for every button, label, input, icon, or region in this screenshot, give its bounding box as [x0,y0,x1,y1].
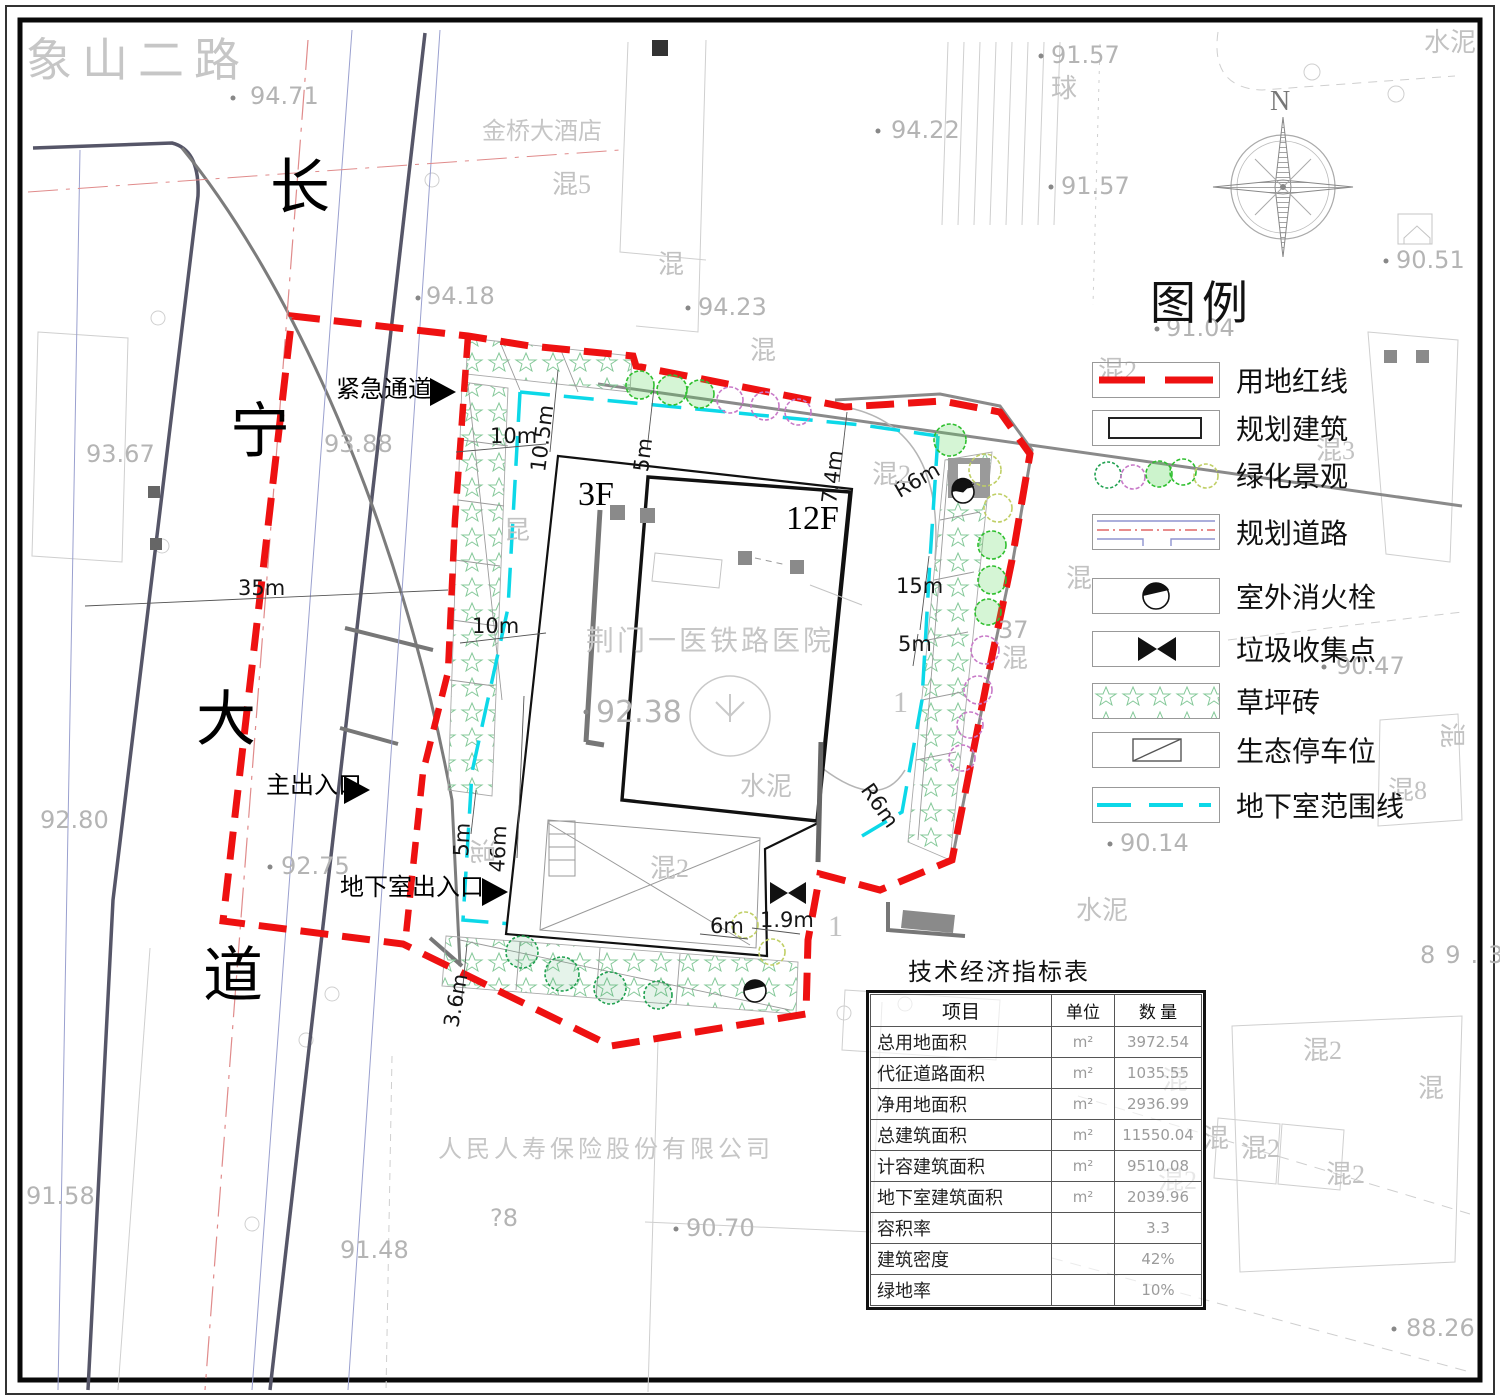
planned-building [506,456,990,956]
parcel-label: 混 [1066,566,1092,592]
dim-35m: 35m [238,578,285,599]
row-unit: m² [1052,1089,1115,1120]
hotel-label: 金桥大酒店 [482,120,602,144]
row-value: 9510.08 [1115,1151,1202,1182]
elevation-label: 94.22 [891,118,960,142]
insurance-company-label: 人民人寿保险股份有限公司 [438,1138,774,1162]
row-value: 10% [1115,1275,1202,1306]
col-header-unit: 单位 [1052,995,1115,1027]
elevation-label: 93.67 [86,442,155,466]
red-boundary-line-icon [1092,362,1220,398]
row-value: 11550.04 [1115,1120,1202,1151]
dim-5m-top: 5m [631,437,656,473]
legend-label: 绿化景观 [1236,455,1348,495]
parcel-label: 水泥 [1424,30,1476,56]
row-item: 总用地面积 [871,1027,1052,1058]
parcel-label: 混2 [1326,1162,1365,1188]
elevation-label: 94.18 [426,284,495,308]
road-name-xiangshan: 象山二路 [26,38,250,84]
row-value: 2936.99 [1115,1089,1202,1120]
grass-brick-icon [1092,683,1220,719]
parcel-label: 混 [1002,646,1028,672]
col-header-value: 数 量 [1115,995,1202,1027]
table-row: 建筑密度 42% [871,1244,1202,1275]
table-row: 净用地面积 m² 2936.99 [871,1089,1202,1120]
elevation-label: 90.70 [686,1216,755,1240]
legend-item-row: 室外消火栓 [1092,576,1376,616]
elevation-label: 94.23 [698,295,767,319]
elevation-label: ?8 [490,1206,518,1230]
row-unit: m² [1052,1120,1115,1151]
row-item: 总建筑面积 [871,1120,1052,1151]
parcel-label: 混2 [650,856,689,882]
greenery-icon [1092,457,1220,493]
legend-label: 室外消火栓 [1236,576,1376,616]
parcel-label: 混 [658,252,684,278]
site-plan-sheet: 象山二路 长 宁 大 道 金桥大酒店 荆门一医铁路医院 人民人寿保险股份有限公司… [0,0,1500,1400]
planned-road-icon [1092,514,1220,550]
indicator-table-title: 技术经济指标表 [908,952,1090,992]
elevation-label: 91.58 [26,1184,95,1208]
row-item: 计容建筑面积 [871,1151,1052,1182]
parcel-label: 混 [750,338,776,364]
row-value: 3.3 [1115,1213,1202,1244]
row-unit: m² [1052,1058,1115,1089]
legend-item-row: 地下室范围线 [1092,785,1404,825]
row-unit [1052,1244,1115,1275]
road-name-changning-char2: 宁 [230,402,290,462]
legend-item-row: 生态停车位 [1092,730,1376,770]
elevation-label: 91.48 [340,1238,409,1262]
row-item: 绿地率 [871,1275,1052,1306]
legend-title: 图例 [1150,267,1254,333]
row-item: 容积率 [871,1213,1052,1244]
planned-building-icon [1092,410,1220,446]
legend-item-row: 规划建筑 [1092,408,1348,448]
parcel-label: 1 [893,688,908,718]
parcel-label: 混 [1418,1076,1444,1102]
parcel-label: 水泥 [1076,898,1128,924]
parcel-label: 球 [1051,76,1077,102]
col-header-item: 项目 [871,995,1052,1027]
elevation-label: 91.57 [1061,174,1130,198]
elevation-label: 92.38 [596,698,682,728]
table-header-row: 项目 单位 数 量 [871,995,1202,1027]
row-value: 1035.55 [1115,1058,1202,1089]
road-name-changning-char3: 大 [196,690,256,750]
parcel-label: 混5 [552,172,591,198]
parcel-label: 1 [828,912,843,942]
row-unit: m² [1052,1027,1115,1058]
legend-label: 地下室范围线 [1236,785,1404,825]
row-item: 地下室建筑面积 [871,1182,1052,1213]
outdoor-hydrant-icon [1092,578,1220,614]
legend-item-row: 绿化景观 [1092,455,1348,495]
row-unit: m² [1052,1182,1115,1213]
legend-label: 草坪砖 [1236,681,1320,721]
elevation-label: 90.51 [1396,248,1465,272]
legend: 图例 用地红线 规划建筑 绿化景观 [1092,355,1472,825]
road-name-changning-char4: 道 [203,946,263,1006]
legend-item-row: 规划道路 [1092,512,1348,552]
waste-collection-point-icon [1092,631,1220,667]
elevation-label: 89.3 [1420,943,1500,967]
row-item: 净用地面积 [871,1089,1052,1120]
row-value: 42% [1115,1244,1202,1275]
row-unit [1052,1213,1115,1244]
elevation-label: 92.75 [281,854,350,878]
north-compass-icon [1213,117,1353,257]
legend-label: 用地红线 [1236,360,1348,400]
indicator-table: 项目 单位 数 量 总用地面积 m² 3972.54 代征道路面积 m² 103… [866,990,1206,1310]
table-row: 总用地面积 m² 3972.54 [871,1027,1202,1058]
hospital-label: 荆门一医铁路医院 [586,628,834,656]
basement-entrance-label: 地下室出入口 [340,876,484,900]
waste-collection-icon [770,882,806,904]
elevation-label: 91.57 [1051,43,1120,67]
emergency-access-label: 紧急通道 [336,378,432,402]
elevation-label: 88.26 [1406,1316,1475,1340]
legend-item-row: 垃圾收集点 [1092,629,1376,669]
legend-label: 规划建筑 [1236,408,1348,448]
row-item: 建筑密度 [871,1244,1052,1275]
dim-1p9m: 1.9m [760,910,814,931]
main-entrance-label: 主出入口 [266,774,362,798]
row-unit [1052,1275,1115,1306]
parcel-label: 混 [468,838,494,864]
basement-extent-icon [1092,787,1220,823]
legend-label: 生态停车位 [1236,730,1376,770]
parcel-label: 昆 [504,518,530,544]
parcel-label: 水泥 [740,774,792,800]
podium-floors-label: 3F [578,478,614,512]
elevation-label: 92.80 [40,808,109,832]
parcel-label: 混 [1203,1126,1229,1152]
elevation-label: 93.88 [324,432,393,456]
table-row: 容积率 3.3 [871,1213,1202,1244]
row-item: 代征道路面积 [871,1058,1052,1089]
table-row: 绿地率 10% [871,1275,1202,1306]
table-row: 总建筑面积 m² 11550.04 [871,1120,1202,1151]
table-row: 计容建筑面积 m² 9510.08 [871,1151,1202,1182]
row-value: 2039.96 [1115,1182,1202,1213]
dim-15m: 15m [896,576,943,597]
row-value: 3972.54 [1115,1027,1202,1058]
parcel-label: 混2 [1241,1136,1280,1162]
dim-6m: 6m [710,916,744,937]
legend-item-row: 用地红线 [1092,360,1348,400]
legend-label: 规划道路 [1236,512,1348,552]
elevation-label: 94.71 [250,84,319,108]
legend-item-row: 草坪砖 [1092,681,1320,721]
elevation-label: 37 [998,618,1029,642]
parcel-label: 混2 [872,462,911,488]
row-unit: m² [1052,1151,1115,1182]
dim-5m-right: 5m [898,634,932,655]
compass-north-letter: N [1270,88,1290,116]
tower-floors-label: 12F [786,502,839,536]
elevation-label: 90.14 [1120,831,1189,855]
eco-parking-icon [1092,732,1220,768]
table-row: 地下室建筑面积 m² 2039.96 [871,1182,1202,1213]
dim-10m-mid: 10m [472,616,519,637]
road-name-changning-char1: 长 [270,158,330,218]
parcel-label: 混2 [1303,1038,1342,1064]
table-row: 代征道路面积 m² 1035.55 [871,1058,1202,1089]
legend-label: 垃圾收集点 [1236,629,1376,669]
